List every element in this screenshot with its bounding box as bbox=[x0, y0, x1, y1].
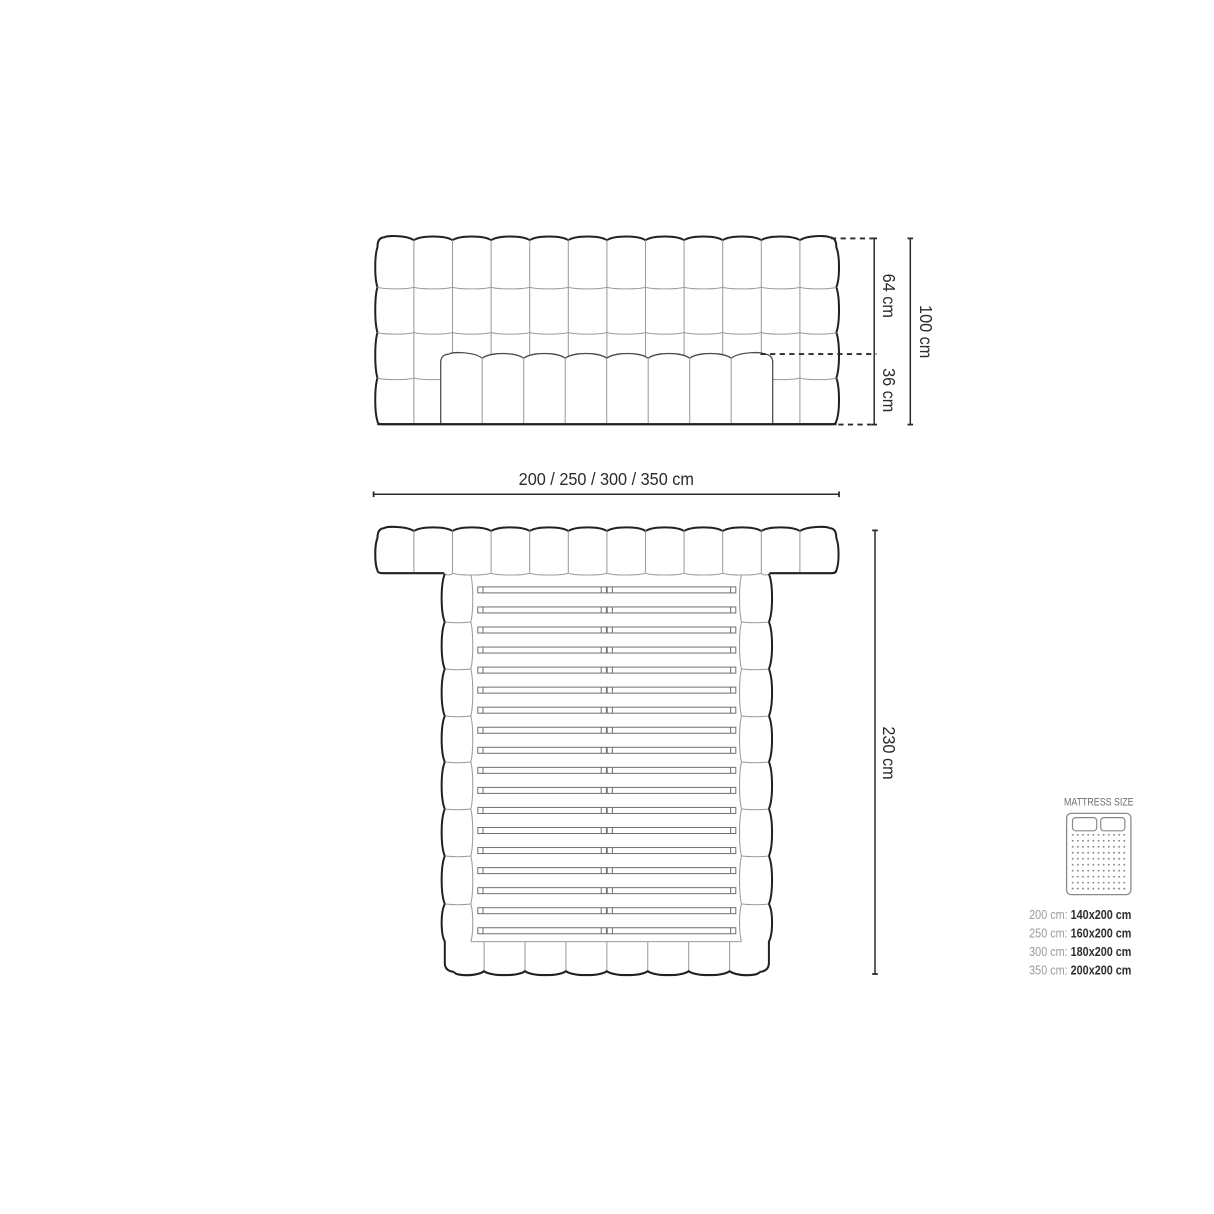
svg-text:200 cm: 140x200 cm: 200 cm: 140x200 cm bbox=[1029, 907, 1131, 922]
svg-text:MATTRESS SIZE: MATTRESS SIZE bbox=[1064, 797, 1134, 809]
svg-text:300 cm: 180x200 cm: 300 cm: 180x200 cm bbox=[1029, 944, 1131, 959]
svg-text:350 cm: 200x200 cm: 350 cm: 200x200 cm bbox=[1029, 962, 1131, 977]
svg-text:250 cm: 160x200 cm: 250 cm: 160x200 cm bbox=[1029, 925, 1131, 940]
svg-text:100 cm: 100 cm bbox=[916, 305, 936, 358]
svg-text:230 cm: 230 cm bbox=[879, 726, 899, 779]
svg-text:64 cm: 64 cm bbox=[879, 274, 899, 318]
svg-text:36 cm: 36 cm bbox=[879, 368, 899, 412]
svg-text:200 / 250 / 300 / 350 cm: 200 / 250 / 300 / 350 cm bbox=[519, 469, 694, 489]
